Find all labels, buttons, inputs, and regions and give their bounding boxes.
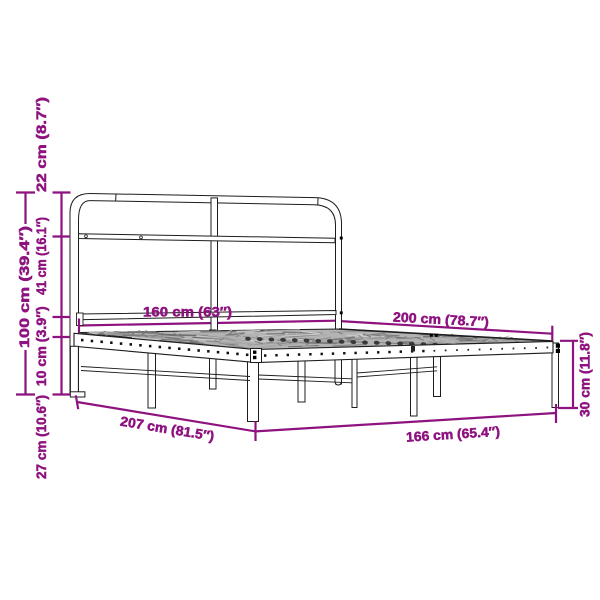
svg-text:166 cm (65.4″): 166 cm (65.4″) xyxy=(406,424,501,445)
svg-text:30 cm (11.8″): 30 cm (11.8″) xyxy=(578,332,593,417)
svg-text:160 cm (63″): 160 cm (63″) xyxy=(143,305,232,320)
svg-text:100 cm (39.4″): 100 cm (39.4″) xyxy=(17,226,32,348)
svg-text:207 cm (81.5″): 207 cm (81.5″) xyxy=(119,414,215,444)
svg-text:41 cm (16.1″): 41 cm (16.1″) xyxy=(34,217,49,295)
svg-text:22 cm (8.7″): 22 cm (8.7″) xyxy=(34,97,49,192)
svg-text:27 cm (10.6″): 27 cm (10.6″) xyxy=(34,395,49,479)
svg-text:200 cm (78.7″): 200 cm (78.7″) xyxy=(393,310,490,330)
svg-text:10 cm (3.9″): 10 cm (3.9″) xyxy=(34,306,49,386)
